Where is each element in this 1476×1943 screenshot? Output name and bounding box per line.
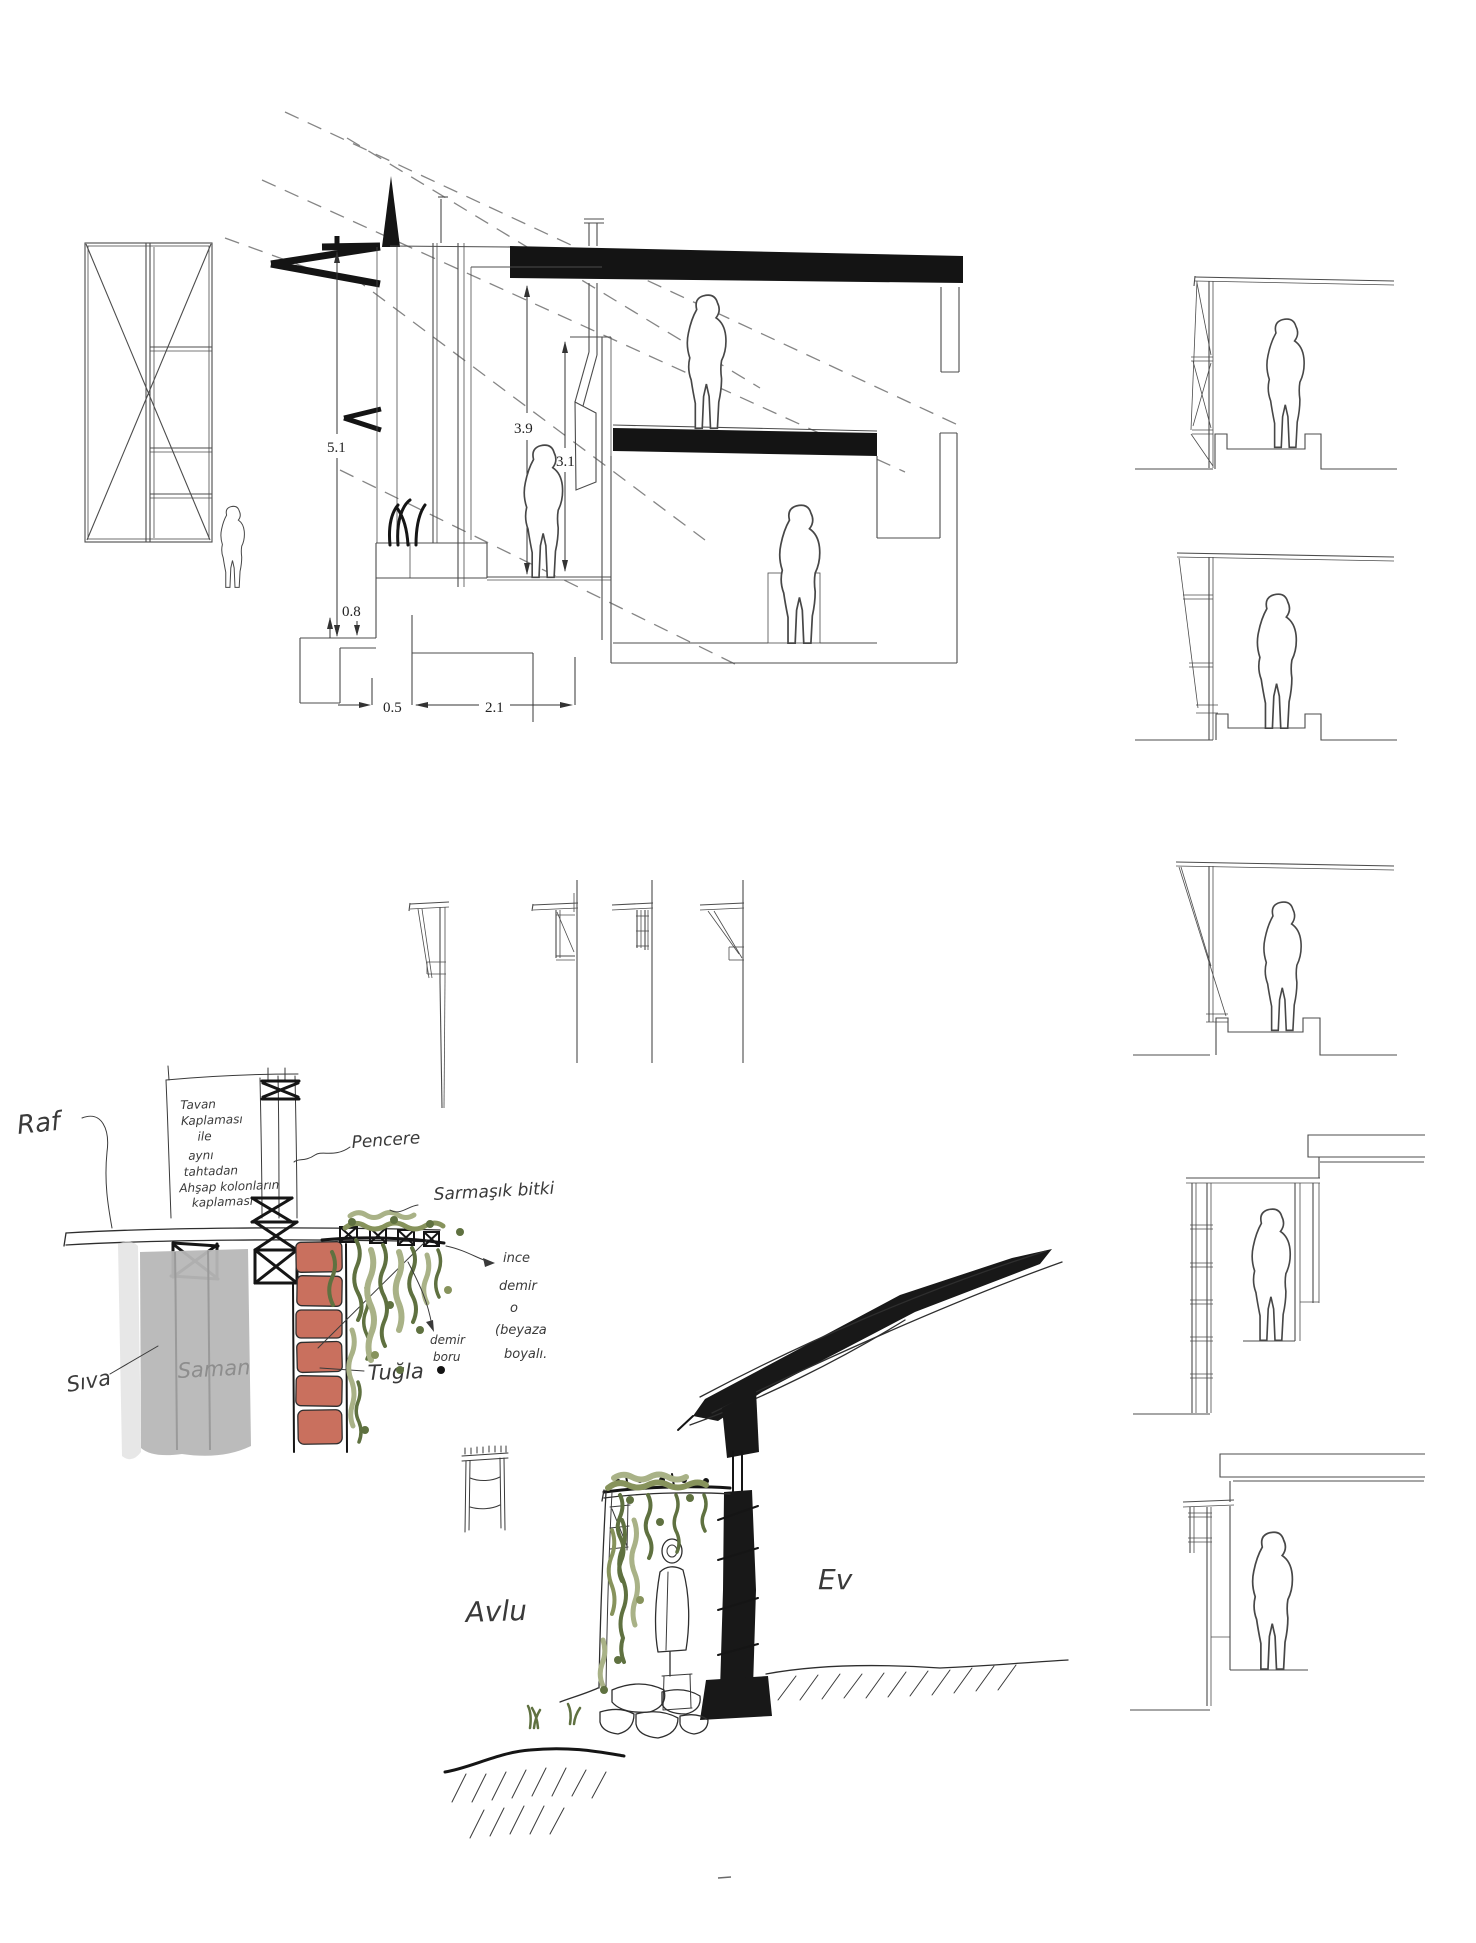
black-column	[720, 1490, 756, 1690]
label-ev: Ev	[818, 1563, 853, 1596]
sun-angle-dashed-lines	[225, 112, 958, 665]
svg-text:Kaplaması: Kaplaması	[181, 1112, 243, 1128]
stray-mark	[718, 1877, 731, 1878]
grass-tufts	[528, 1704, 580, 1728]
label-sarmasik: Sarmaşık bitki	[433, 1179, 555, 1205]
courtyard-figure	[656, 1539, 692, 1710]
bracket-study-1	[409, 902, 449, 1108]
bracket-study-2	[532, 880, 578, 1063]
small-stand-sketch	[462, 1446, 508, 1532]
main-section-drawing: 5.1 3.9 3.1 0.8	[225, 112, 963, 722]
label-saman: Saman	[177, 1355, 251, 1383]
dim-label-2-1: 2.1	[485, 700, 504, 716]
svg-text:Ahşap kolonların: Ahşap kolonların	[178, 1178, 279, 1196]
svg-text:boyalı.: boyalı.	[504, 1347, 547, 1362]
person-silhouette	[687, 295, 726, 428]
dim-label-0-8: 0.8	[342, 604, 361, 620]
person-silhouette	[1257, 594, 1296, 728]
sketch-page: 5.1 3.9 3.1 0.8	[0, 0, 1476, 1943]
label-tugla: Tuğla	[367, 1359, 424, 1385]
rock-foundation	[445, 1684, 708, 1772]
dimension-plinth: 0.8	[327, 604, 361, 638]
post-x-brace-top	[262, 1081, 299, 1099]
dim-label-3-9: 3.9	[514, 421, 533, 437]
person-silhouette	[1264, 902, 1301, 1030]
elevation-study-1	[1135, 276, 1397, 469]
ladder-rungs	[1190, 1225, 1213, 1378]
svg-text:Tavan: Tavan	[180, 1097, 216, 1112]
svg-text:o: o	[510, 1301, 518, 1316]
svg-text:kaplaması: kaplaması	[192, 1194, 254, 1210]
braced-panel-elevation	[85, 243, 212, 542]
vine-foliage	[329, 1213, 464, 1443]
person-silhouette	[1253, 1532, 1293, 1669]
label-pencere: Pencere	[351, 1128, 421, 1153]
bracket-study-3	[612, 880, 653, 1063]
svg-text:aynı: aynı	[188, 1148, 214, 1163]
wall-corner-detail: Tavan Kaplaması ile aynı tahtadan Ahşap …	[16, 1066, 556, 1532]
right-building-outline	[611, 287, 959, 663]
svg-text:ile: ile	[197, 1129, 212, 1143]
planter-bench	[376, 500, 487, 578]
dimension-total-height: 5.1	[327, 251, 346, 637]
dim-label-0-5: 0.5	[383, 700, 402, 716]
roof-slab	[510, 246, 963, 283]
brick-column	[293, 1242, 347, 1452]
label-demir-boru: demir boru	[430, 1333, 466, 1364]
pergola-vine	[600, 1475, 706, 1695]
ground-hatching-left	[452, 1768, 606, 1838]
svg-text:demir: demir	[499, 1279, 539, 1294]
label-ince-demir: ince demir o (beyaza boyalı.	[495, 1251, 547, 1362]
bracket-study-4	[700, 880, 744, 1063]
straw-wall-fill	[140, 1249, 251, 1456]
svg-text:demir: demir	[430, 1333, 466, 1347]
dimension-clear-height: 3.1	[556, 341, 575, 572]
label-raf: Raf	[16, 1106, 66, 1141]
person-silhouette	[1252, 1209, 1290, 1340]
dimension-width: 2.1	[415, 657, 575, 716]
material-note: Tavan Kaplaması ile aynı tahtadan Ahşap …	[175, 1095, 280, 1210]
svg-text:tahtadan: tahtadan	[184, 1163, 239, 1179]
svg-text:boru: boru	[433, 1350, 461, 1364]
person-silhouette	[780, 505, 820, 643]
grass-tuft	[416, 505, 425, 545]
dim-label-3-1: 3.1	[556, 454, 575, 470]
pipe-dot	[437, 1366, 445, 1374]
person-silhouette	[1267, 319, 1304, 447]
floor-slab	[613, 428, 877, 456]
drawing-sheet: 5.1 3.9 3.1 0.8	[0, 0, 1476, 1943]
dim-label-5-1: 5.1	[327, 440, 346, 456]
svg-text:(beyaza: (beyaza	[495, 1323, 547, 1338]
trellis-bracket-arrows	[271, 176, 400, 430]
svg-text:ince: ince	[503, 1251, 530, 1266]
plaster-strip	[118, 1241, 141, 1459]
label-avlu: Avlu	[463, 1594, 527, 1629]
column-footing	[700, 1676, 772, 1720]
dimension-offset: 0.5	[338, 678, 402, 716]
ground-hatching-right	[766, 1660, 1068, 1700]
person-silhouette	[221, 506, 245, 587]
label-siva: Sıva	[65, 1366, 113, 1397]
